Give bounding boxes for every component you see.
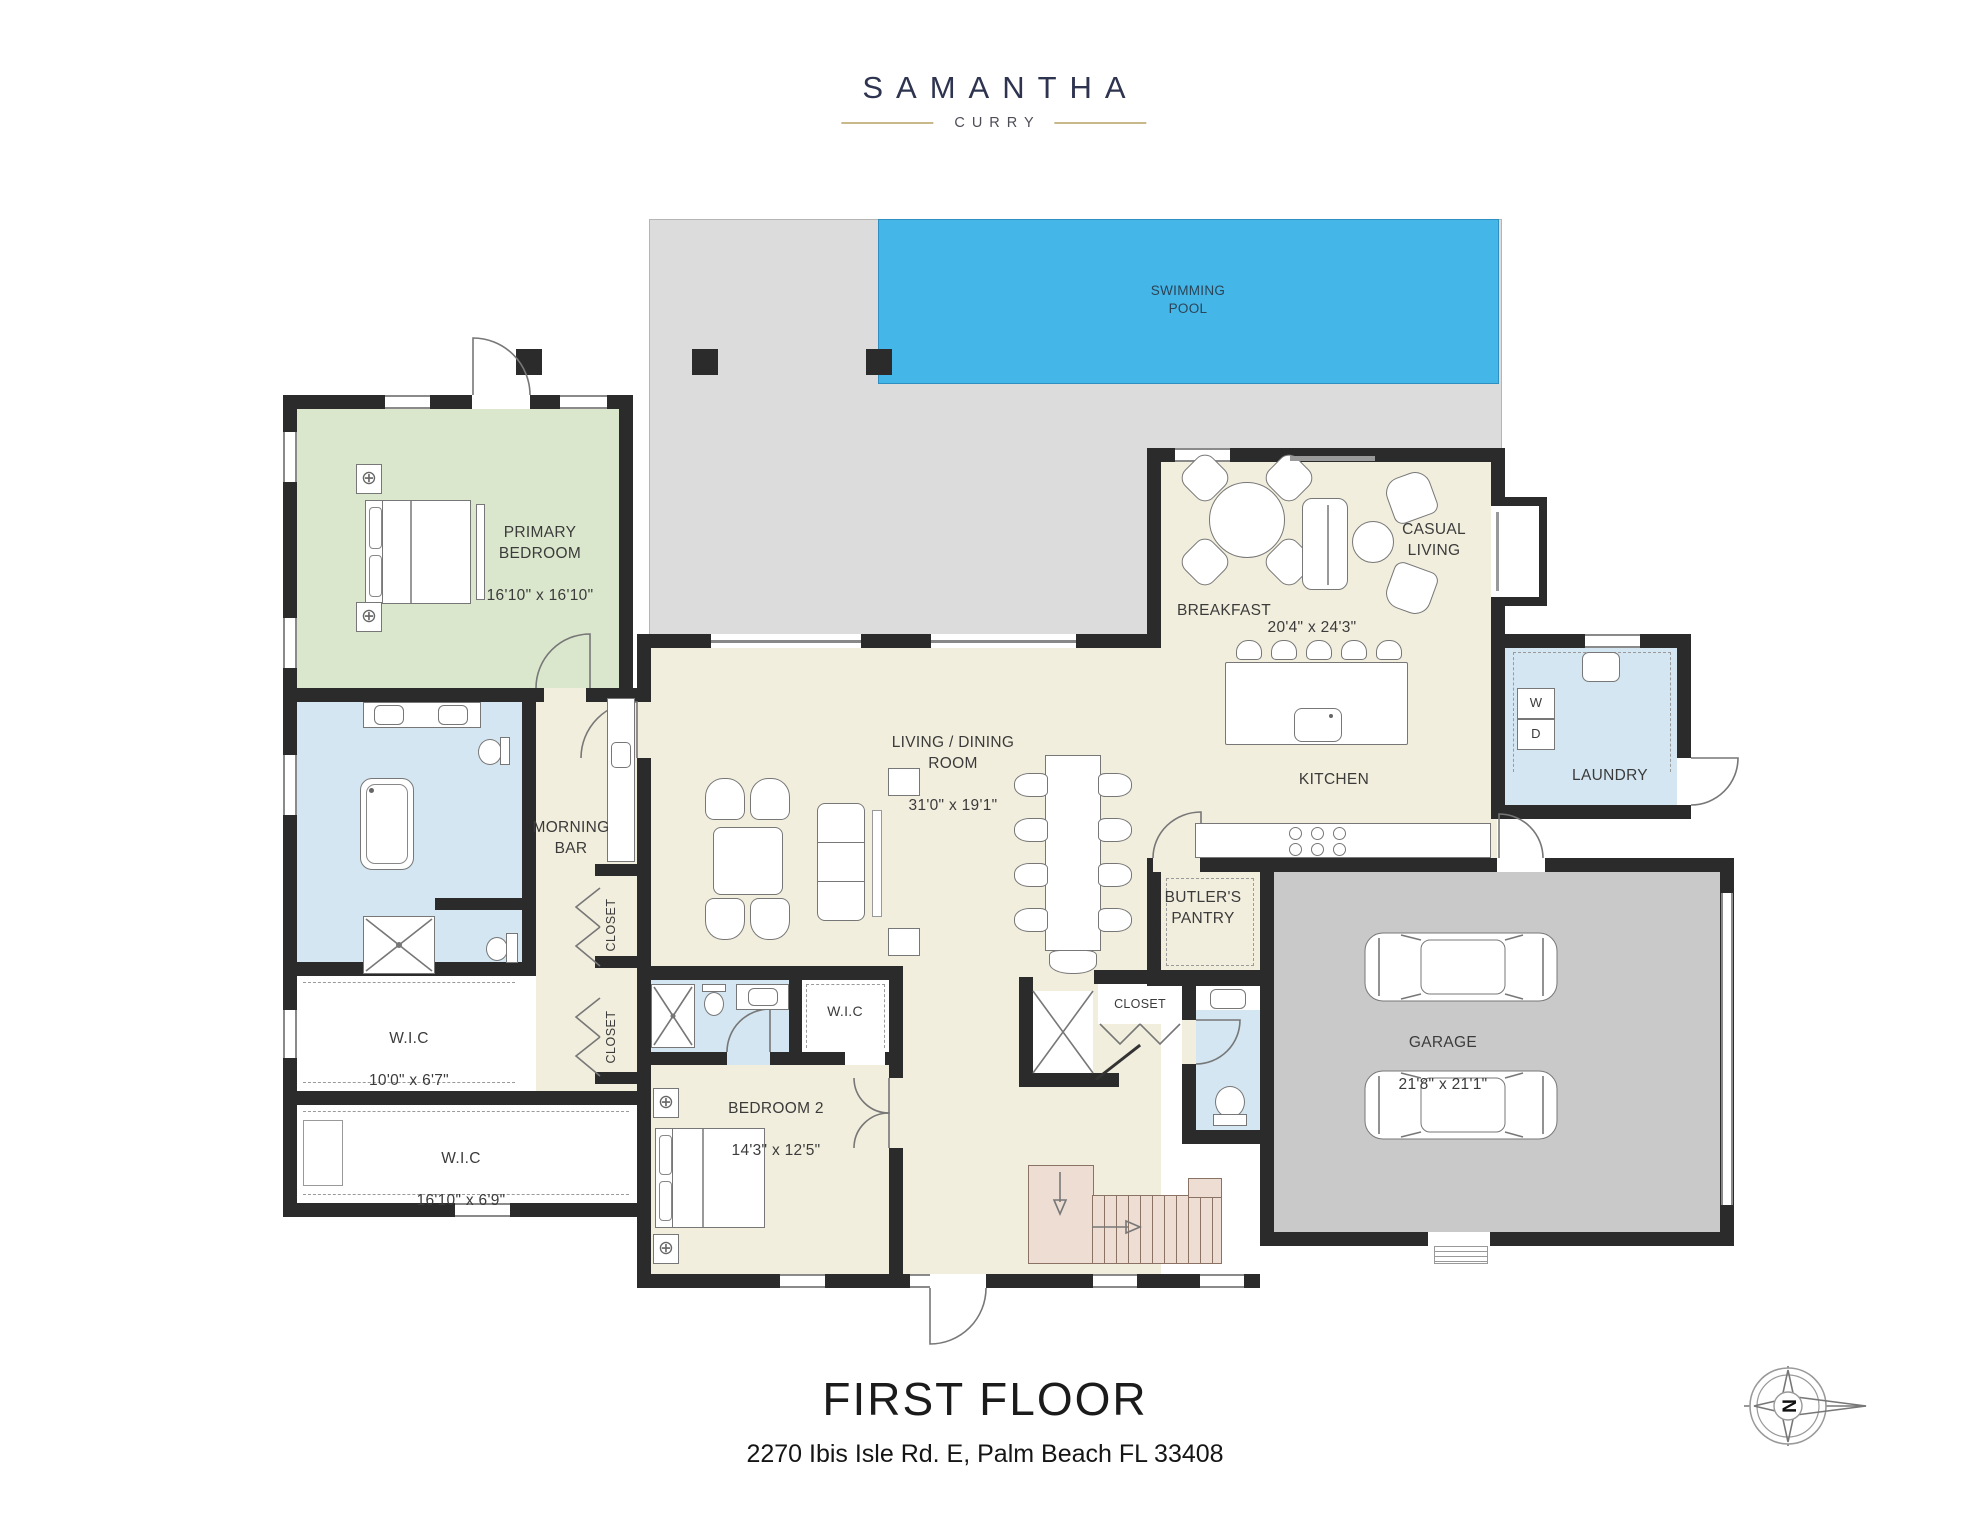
armchair <box>750 778 790 820</box>
door-opening <box>637 702 651 758</box>
wall-segment <box>435 898 536 910</box>
window <box>780 1274 825 1288</box>
property-address: 2270 Ibis Isle Rd. E, Palm Beach FL 3340… <box>746 1440 1223 1469</box>
door-opening <box>1153 858 1200 872</box>
door-opening <box>1182 1020 1196 1064</box>
wall-segment <box>1182 984 1196 1020</box>
wall-segment <box>1545 858 1720 872</box>
bifold-door <box>574 998 600 1076</box>
ceiling-fan-icon: ⊕ <box>356 602 382 632</box>
window <box>385 395 430 409</box>
brand-name: SAMANTHA <box>841 70 1146 106</box>
wall-segment <box>651 1052 727 1065</box>
ceiling-fan-icon: ⊕ <box>653 1088 679 1118</box>
ceiling-fan-icon: ⊕ <box>356 464 382 494</box>
lanai-column <box>866 349 892 375</box>
console-table <box>872 810 882 917</box>
dining-chair <box>1014 818 1048 842</box>
wall-segment <box>1182 1130 1274 1144</box>
wall-segment <box>637 1274 780 1288</box>
ceiling-fan-icon: ⊕ <box>653 1234 679 1264</box>
window <box>1200 1274 1244 1288</box>
powder-sink <box>1210 989 1246 1009</box>
toilet-tank <box>702 984 726 992</box>
stairs-arrows <box>1028 1160 1228 1270</box>
slider-door <box>711 640 861 643</box>
page-title: FIRST FLOOR <box>822 1372 1147 1426</box>
front-door-swing <box>930 1288 986 1344</box>
door-swing <box>1499 814 1543 858</box>
dining-chair <box>1098 863 1132 887</box>
sink <box>438 705 468 725</box>
window <box>283 1010 297 1058</box>
wall-segment <box>1147 872 1161 986</box>
coffee-table <box>713 827 783 895</box>
niche-wall <box>1539 497 1547 606</box>
armchair <box>750 898 790 940</box>
door-swing <box>1691 758 1738 805</box>
room-label-wic-bedroom2: W.I.C <box>827 1002 863 1021</box>
wic-small-name: W.I.C <box>389 1030 428 1047</box>
door-swing <box>1196 1020 1240 1064</box>
primary-bedroom-name: PRIMARY BEDROOM <box>499 524 581 562</box>
wall-segment <box>889 966 903 1078</box>
window <box>910 1274 930 1288</box>
bifold-door <box>574 888 600 966</box>
sofa <box>817 803 865 921</box>
toilet-tank <box>506 933 518 963</box>
wall-segment <box>1260 858 1274 1246</box>
room-label-living-dining: LIVING / DINING ROOM 31'0" x 19'1" <box>892 712 1015 817</box>
armchair <box>705 898 745 940</box>
wall-segment <box>1147 462 1161 648</box>
wall-segment <box>283 688 536 702</box>
island-sink <box>1294 708 1342 742</box>
wall-segment <box>536 688 544 702</box>
wall-segment <box>1491 642 1505 819</box>
burner <box>1333 843 1346 856</box>
window <box>560 395 607 409</box>
wall-segment <box>637 1105 651 1203</box>
entry-steps <box>1434 1246 1488 1264</box>
window <box>1093 1274 1137 1288</box>
wall-segment <box>1137 1274 1200 1288</box>
laundry-sink <box>1582 652 1620 682</box>
door-opening <box>889 1078 903 1148</box>
breakfast-dims: 20'4" x 24'3" <box>1268 618 1357 639</box>
burner <box>1289 843 1302 856</box>
dining-table <box>1045 755 1101 951</box>
dining-chair <box>1014 863 1048 887</box>
burner <box>1311 827 1324 840</box>
door-swing <box>854 1113 889 1148</box>
laundry-door-opening <box>1677 758 1691 805</box>
window <box>283 432 297 482</box>
bifold-door <box>1100 1024 1180 1046</box>
wall-segment <box>770 1052 845 1065</box>
wic-large-dims: 16'10" x 6'9" <box>417 1192 506 1209</box>
wall-segment <box>595 864 637 876</box>
sink <box>374 705 404 725</box>
room-label-kitchen: KITCHEN <box>1299 770 1369 791</box>
compass-north-letter: N <box>1778 1399 1799 1413</box>
compass-rose: N <box>1748 1366 1872 1458</box>
wall-segment <box>637 634 651 648</box>
burner <box>1311 843 1324 856</box>
bench <box>476 504 485 600</box>
logo-rule-left <box>841 122 933 124</box>
room-label-morning-bar: MORNING BAR <box>532 818 609 860</box>
door-swing <box>727 1009 770 1052</box>
sink <box>748 988 778 1006</box>
media-console <box>1290 456 1375 461</box>
dryer-label: D <box>1531 725 1541 743</box>
bed <box>365 500 471 604</box>
room-label-bedroom2: BEDROOM 2 14'3" x 12'5" <box>728 1078 824 1162</box>
shower-lines <box>363 916 435 974</box>
wall-segment <box>1260 1232 1428 1246</box>
door-opening <box>727 1052 770 1065</box>
wall-segment <box>595 956 637 968</box>
bar-counter <box>607 698 635 862</box>
room-label-laundry: LAUNDRY <box>1572 766 1648 787</box>
garage-floor <box>1274 872 1720 1232</box>
dining-chair <box>1098 773 1132 797</box>
pool-label: SWIMMING POOL <box>1151 282 1225 318</box>
bedroom2-name: BEDROOM 2 <box>728 1100 824 1117</box>
breakfast-table <box>1209 482 1285 558</box>
round-side-table <box>1352 521 1394 563</box>
dining-chair <box>1098 818 1132 842</box>
window <box>283 618 297 668</box>
wall-segment <box>1244 1274 1260 1288</box>
wall-segment <box>1491 606 1505 642</box>
wic-large-name: W.I.C <box>441 1150 480 1167</box>
door-opening <box>544 688 586 702</box>
toilet <box>486 937 508 961</box>
door-swing <box>854 1078 889 1113</box>
wall-segment <box>619 409 633 690</box>
toilet <box>704 992 724 1016</box>
room-label-casual-living: CASUAL LIVING <box>1402 520 1466 562</box>
wic-small-dims: 10'0" x 6'7" <box>369 1072 449 1089</box>
bar-sink <box>611 742 631 768</box>
bar-stool <box>1306 640 1332 660</box>
chaise-sofa <box>1302 498 1348 590</box>
wall-segment <box>1677 634 1691 758</box>
room-label-hall-closet-upper: CLOSET <box>604 898 618 951</box>
door-swing <box>1153 812 1201 858</box>
wall-segment <box>1490 1232 1734 1246</box>
logo-rule-right <box>1055 122 1147 124</box>
toilet-tank <box>500 737 510 765</box>
wall-segment <box>1019 977 1033 1087</box>
car <box>1363 928 1559 1006</box>
bar-stool <box>1236 640 1262 660</box>
door-swing <box>536 634 590 688</box>
room-label-primary-bedroom: PRIMARY BEDROOM 16'10" x 16'10" <box>487 502 594 607</box>
wall-segment <box>861 634 931 648</box>
living-dining-dims: 31'0" x 19'1" <box>909 797 998 814</box>
room-label-garage: GARAGE 21'8" x 21'1" <box>1399 1012 1488 1096</box>
bar-stool <box>1376 640 1402 660</box>
brand-logo: SAMANTHA CURRY <box>841 70 1146 131</box>
toilet <box>478 739 502 765</box>
window <box>1585 634 1640 648</box>
bedroom2-dims: 14'3" x 12'5" <box>732 1142 821 1159</box>
covered-lanai <box>649 448 1150 649</box>
room-label-hall-closet-lower: CLOSET <box>604 1010 618 1063</box>
slider-door <box>931 640 1076 643</box>
room-label-wic-small: W.I.C 10'0" x 6'7" <box>369 1008 449 1092</box>
wall-segment <box>1274 858 1497 872</box>
garage-rear-opening <box>1428 1232 1490 1246</box>
wall-segment <box>637 758 651 1103</box>
garage-door <box>1721 893 1733 1205</box>
lanai-column <box>692 349 718 375</box>
wall-segment <box>789 980 802 1052</box>
shower-lines <box>651 984 695 1048</box>
dining-chair <box>1049 950 1097 974</box>
room-label-breakfast: BREAKFAST <box>1177 601 1271 622</box>
wall-segment <box>889 1148 903 1274</box>
niche-line <box>1496 512 1499 591</box>
window <box>283 755 297 815</box>
burner <box>1289 827 1302 840</box>
garage-dims: 21'8" x 21'1" <box>1399 1076 1488 1093</box>
living-dining-name: LIVING / DINING ROOM <box>892 734 1015 772</box>
bathtub <box>360 778 414 870</box>
closet-dresser <box>303 1120 343 1186</box>
wall-segment <box>1094 970 1274 984</box>
wall-segment <box>1505 634 1585 648</box>
room-label-stair-closet: CLOSET <box>1114 996 1166 1013</box>
elevator-x <box>1033 991 1093 1073</box>
room-label-butlers-pantry: BUTLER'S PANTRY <box>1165 888 1242 930</box>
burner <box>1333 827 1346 840</box>
dining-chair <box>1014 908 1048 932</box>
primary-bedroom-dims: 16'10" x 16'10" <box>487 587 594 604</box>
wall-segment <box>1147 448 1175 462</box>
garage-name: GARAGE <box>1409 1034 1477 1051</box>
floor-plan-page: SAMANTHA CURRY SWIMMING POOL <box>0 0 1988 1536</box>
bar-stool <box>1341 640 1367 660</box>
washer-label: W <box>1530 694 1543 712</box>
side-table <box>888 928 920 956</box>
door-swing <box>472 337 530 395</box>
wall-segment <box>637 648 651 702</box>
bar-stool <box>1271 640 1297 660</box>
wall-segment <box>283 1091 651 1105</box>
brand-subname: CURRY <box>947 115 1040 131</box>
dining-chair <box>1014 773 1048 797</box>
wall-segment <box>986 1274 1093 1288</box>
wall-segment <box>595 1072 637 1084</box>
room-label-wic-large: W.I.C 16'10" x 6'9" <box>417 1128 506 1212</box>
wall-segment <box>651 634 711 648</box>
door-opening <box>845 1052 885 1065</box>
wall-segment <box>637 966 903 980</box>
toilet-tank <box>1213 1114 1247 1126</box>
armchair <box>705 778 745 820</box>
door-opening <box>1497 858 1545 872</box>
wall-segment <box>283 395 472 409</box>
dining-chair <box>1098 908 1132 932</box>
front-door-opening <box>930 1274 986 1288</box>
wall-segment <box>825 1274 910 1288</box>
